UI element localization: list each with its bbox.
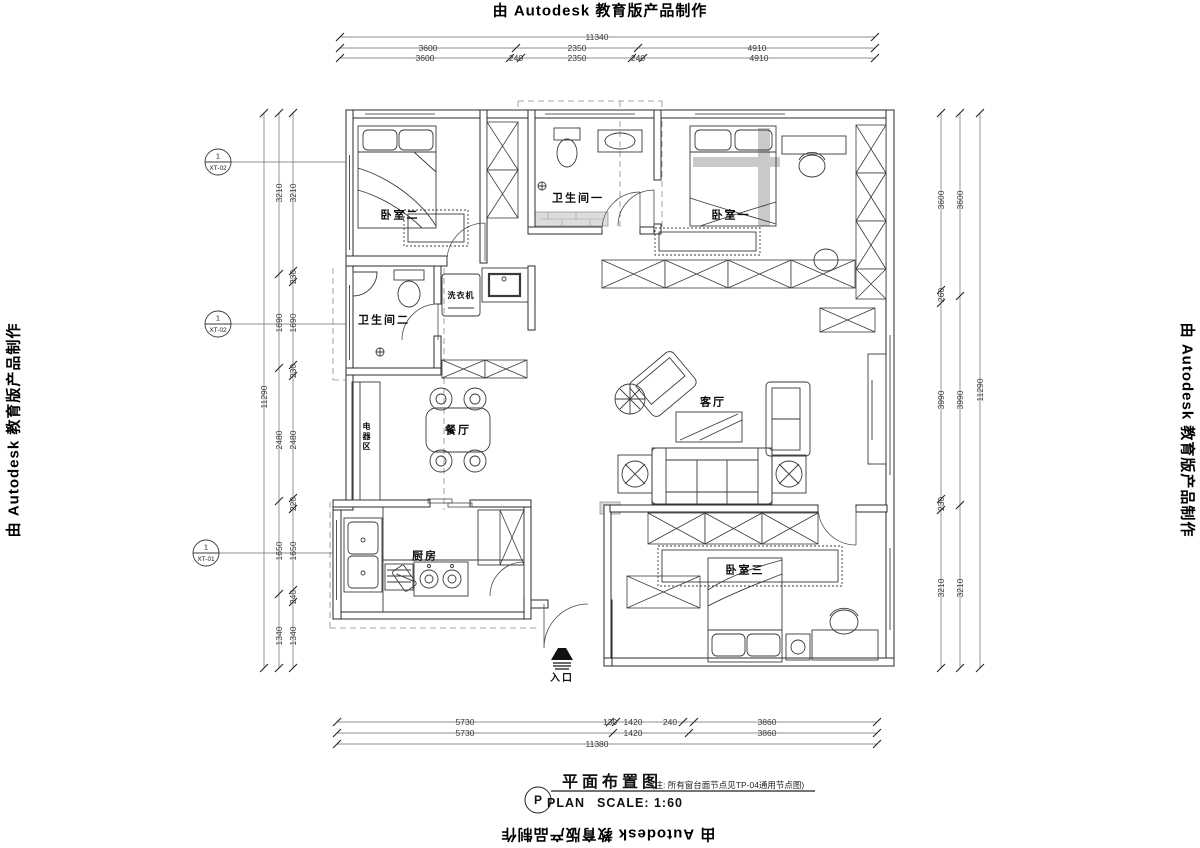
sofa-single: [766, 382, 810, 456]
callout-number: 1: [204, 543, 208, 551]
dim-label: 2480: [289, 431, 298, 450]
autodesk-banner-top: 由 Autodesk 教育版产品制作: [493, 4, 708, 19]
tv-bench: [868, 354, 886, 464]
dim-label: 3210: [275, 184, 284, 203]
room-label-dining: 餐厅: [445, 426, 471, 437]
dim-label: 1650: [289, 542, 298, 561]
entrance-icon: [551, 648, 573, 669]
room-label-bath1: 卫生间一: [552, 194, 604, 205]
dim-label: 260: [937, 288, 946, 302]
dim-label: 1340: [289, 627, 298, 646]
bed-bedroom2: [358, 126, 468, 246]
dim-label: 220: [289, 497, 298, 511]
toilet-bath2: [394, 270, 424, 307]
desk-bedroom3: [812, 608, 878, 660]
room-label-bedroom1: 卧室一: [712, 211, 751, 222]
dim-label: 240: [631, 54, 645, 63]
autodesk-banner-left: 由 Autodesk 教育版产品制作: [7, 323, 22, 538]
stove: [414, 562, 468, 596]
dim-label: 1690: [275, 314, 284, 333]
floor-drain-icon: [376, 348, 384, 356]
dim-label: 3210: [956, 579, 965, 598]
dim-label: 2350: [568, 54, 587, 63]
drawing-scale: SCALE: 1:60: [597, 797, 683, 810]
dim-label: 230: [289, 270, 298, 284]
dim-label: 1420: [624, 729, 643, 738]
side-table-fan: [618, 455, 806, 493]
shower-shelf-bath2: [353, 272, 377, 296]
room-label-bedroom2: 卧室二: [381, 211, 420, 222]
dim-label: 1420: [624, 718, 643, 727]
dim-label: 3600: [419, 44, 438, 53]
titleblock-plan-word: PLAN: [547, 797, 585, 810]
dim-label: 3600: [937, 191, 946, 210]
room-label-living: 客厅: [700, 398, 726, 409]
dim-label: 1650: [275, 542, 284, 561]
callout-number: 1: [216, 152, 220, 160]
dim-label: 11380: [585, 740, 608, 749]
dim-label: 2350: [568, 44, 587, 53]
dim-label: 11290: [260, 385, 269, 408]
dim-label: 1340: [275, 627, 284, 646]
armchair: [627, 349, 698, 419]
floor-drain-icon: [538, 182, 546, 190]
dim-label: 3600: [416, 54, 435, 63]
dim-label: 230: [289, 364, 298, 378]
dim-label: 240: [289, 590, 298, 604]
autodesk-banner-bottom: 由 Autodesk 教育版产品制作: [501, 827, 716, 842]
kitchen-mat: [385, 564, 413, 590]
room-label-bath2: 卫生间二: [358, 316, 410, 327]
dim-label: 11290: [976, 378, 985, 401]
dim-label: 2480: [275, 431, 284, 450]
coffee-table: [676, 412, 742, 442]
room-label-kitchen: 厨房: [412, 552, 438, 563]
dim-label: 3990: [937, 391, 946, 410]
titleblock-bubble: P: [534, 794, 542, 806]
label-entrance: 入口: [550, 674, 574, 684]
dim-label: 3990: [956, 391, 965, 410]
cad-floorplan-sheet: 由 Autodesk 教育版产品制作 由 Autodesk 教育版产品制作 由 …: [0, 0, 1200, 848]
toilet-bath1: [554, 128, 580, 167]
dim-label: 240: [663, 718, 677, 727]
dim-label: 4910: [750, 54, 769, 63]
room-label-bedroom3: 卧室三: [726, 566, 765, 577]
dim-label: 4910: [748, 44, 767, 53]
label-washing-machine: 洗衣机: [448, 292, 475, 300]
callout-code: XT-02: [209, 166, 226, 173]
dim-label: 3210: [937, 579, 946, 598]
beam-hatches: [535, 128, 780, 514]
dim-label: 3860: [758, 729, 777, 738]
label-appliance-area: 电器区: [362, 422, 370, 452]
dim-label: 1690: [289, 314, 298, 333]
floor-plan-drawing: [0, 0, 1200, 848]
dim-label: 5730: [456, 718, 475, 727]
bed-bedroom1: [655, 126, 776, 255]
drawing-title: 平面布置图: [562, 775, 662, 791]
dim-label: 240: [509, 54, 523, 63]
desk-bedroom1: [782, 136, 846, 271]
callout-bubbles: [193, 149, 231, 566]
dim-label: 3210: [289, 184, 298, 203]
sink-counter: [482, 268, 528, 302]
callout-number: 1: [216, 314, 220, 322]
dim-label: 3860: [758, 718, 777, 727]
dim-label: 5730: [456, 729, 475, 738]
kitchen-sink: [344, 518, 382, 592]
autodesk-banner-right: 由 Autodesk 教育版产品制作: [1180, 323, 1195, 538]
furniture: [344, 126, 886, 669]
drawing-note: (注: 所有窗台面节点见TP-04通用节点图): [652, 781, 805, 790]
dim-label: 3600: [956, 191, 965, 210]
callout-code: XT-01: [197, 557, 214, 564]
dim-label: 230: [937, 497, 946, 511]
nightstand: [786, 634, 810, 660]
dim-label: 11340: [585, 33, 608, 42]
callout-code: XT-02: [209, 328, 226, 335]
cabinet-cells: [442, 122, 886, 608]
sofa-main: [652, 448, 772, 504]
dim-label: 130: [603, 718, 617, 727]
